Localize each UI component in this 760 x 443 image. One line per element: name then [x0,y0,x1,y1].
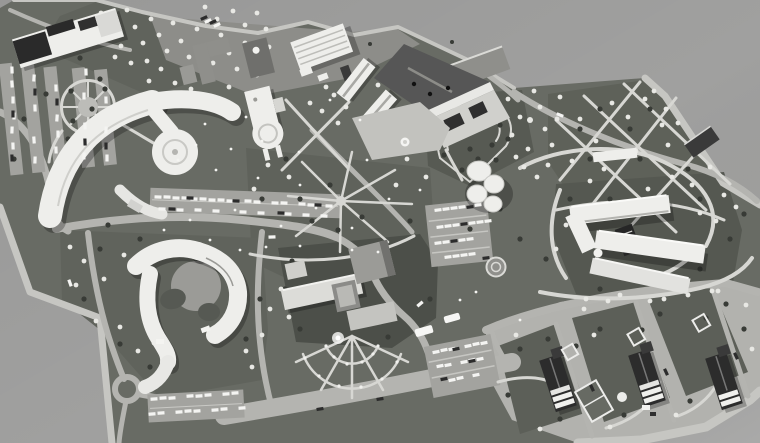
tree-dark [359,214,364,219]
figure [230,148,233,151]
car-white [10,80,14,87]
tree-light [618,293,623,298]
tree-light [344,105,349,110]
tree-dark [441,152,446,157]
car-white [307,203,314,206]
tree-light [514,155,519,160]
tree-dark [627,126,632,131]
figure [215,169,218,172]
tree-light [564,223,569,228]
figure [519,319,522,322]
tree-light [662,297,667,302]
car-white [55,114,59,121]
tree-dark [505,392,510,397]
tree-dark [105,222,110,227]
statue [303,356,306,359]
tree-light [394,183,399,188]
tree-light [750,347,755,352]
car-white [11,142,14,149]
car-white [32,136,36,143]
tree-dark [723,301,728,306]
tree-light [203,5,208,10]
blob-4 [484,196,502,212]
tree-light [510,133,515,138]
helipad [487,258,506,277]
tree-light [68,245,73,250]
figure [298,151,301,154]
figure [245,116,248,119]
statue [345,362,348,365]
tree-dark [297,196,302,201]
tree-dark [81,296,86,301]
tree-light [664,107,669,112]
tree-dark [68,88,73,93]
tree-dark [77,55,82,60]
statue [332,355,335,358]
car-dark [33,89,36,96]
car-white [163,195,170,198]
car-white [195,394,202,398]
figure [359,119,362,122]
tree-dark [459,167,464,172]
roof-unit [156,339,164,344]
car-white [193,409,200,413]
tree-light [320,109,325,114]
car-white [10,126,13,133]
car-white [82,152,85,159]
figure [315,207,318,210]
car-white [32,74,36,81]
park-hub [336,196,346,206]
courtyard-2 [198,303,220,321]
tree-light [332,93,337,98]
tree-light [119,44,124,49]
tree-dark [137,236,142,241]
figure [189,219,192,222]
car-white [231,391,238,395]
pod-core [172,149,178,155]
tree-dark [741,326,746,331]
tree-light [602,167,607,172]
car-white [84,68,87,75]
figure [299,245,302,248]
tree-light [676,121,681,126]
tree-dark [97,246,102,251]
tree-dark [607,196,612,201]
chimney [412,82,416,86]
tree-light [652,89,657,94]
tree-light [506,97,511,102]
tree-light [722,193,727,198]
figure [261,140,264,143]
lot-southwest [147,390,244,423]
tree-light [118,325,123,330]
shed [642,405,650,410]
figure [377,251,380,254]
figure [329,99,332,102]
tree-light [74,283,79,288]
tree-light [145,59,150,64]
car-white [257,211,264,214]
figure [280,225,283,228]
tree-dark [685,166,690,171]
car-white [56,131,59,138]
car-dark [186,196,193,199]
tree-dark [577,126,582,131]
tree-dark [517,236,522,241]
car-white [320,214,327,217]
blob-2 [484,175,504,193]
car-white [271,201,278,204]
tree-light [102,277,107,282]
tree-light [550,143,555,148]
tree-light [287,175,292,180]
tree-dark [727,236,732,241]
tree-dark [621,412,626,417]
tree-dark [741,211,746,216]
tree-light [268,307,273,312]
tree-dark [517,346,522,351]
car-white [284,212,291,215]
tree-light [243,23,248,28]
tree-dark [368,42,372,46]
tree-light [227,85,232,90]
car-white [175,410,182,414]
tree-dark [467,226,472,231]
tree-dark [545,336,550,341]
figure [177,159,180,162]
figure [351,249,354,252]
figure [299,184,302,187]
statue [380,377,383,380]
figure [351,227,354,230]
tree-light [670,175,675,180]
car-white [211,408,218,412]
tree-light [122,253,127,258]
tree-dark [543,256,548,261]
figure [388,198,391,201]
tree-light [592,333,597,338]
car-white [302,213,309,216]
tree-light [643,97,648,102]
tree-light [710,289,715,294]
tree-light [666,143,671,148]
tree-light [324,85,329,90]
tree-light [716,289,721,294]
tree-light [235,67,240,72]
tree-light [157,33,162,38]
figure [475,291,478,294]
tree-dark [427,296,432,301]
figure [366,159,369,162]
tree-dark [687,398,692,403]
tree-dark [243,336,248,341]
tree-light [159,67,164,72]
statue [376,344,379,347]
tree-light [129,61,134,66]
figure [204,123,207,126]
tree-light [558,95,563,100]
tree-light [171,21,176,26]
tree-light [173,81,178,86]
tree-light [133,25,138,30]
statue [371,352,374,355]
tree-light [308,101,313,106]
tree-dark [567,196,572,201]
tree-light [538,427,543,432]
tree-light [698,211,703,216]
entrance-fountain [336,336,341,341]
tree-light [626,115,631,120]
tree-dark [43,91,48,96]
tree-light [594,139,599,144]
tree-dark [597,286,602,291]
tree-dark [657,311,662,316]
tree-dark [283,156,288,161]
tree-light [648,299,653,304]
car-white [33,156,36,163]
car-white [148,412,155,416]
figure [419,189,422,192]
car-white [194,208,201,211]
figure [234,209,237,212]
tree-light [244,349,249,354]
car-white [157,411,164,415]
tree-light [250,365,255,370]
car-white [54,84,57,91]
tree-dark [557,416,562,421]
car-white [159,396,166,400]
car-white [168,396,175,400]
model-photo-svg [0,0,760,443]
tree-light [578,117,583,122]
tree-light [136,349,141,354]
tree-light [606,299,611,304]
tree-light [287,315,292,320]
car-white [239,210,246,213]
tree-light [260,333,265,338]
tree-light [336,121,341,126]
helipad-ring [487,258,506,277]
car-white [172,196,179,199]
tree-dark [297,326,302,331]
tree-light [94,319,99,324]
tree-dark [697,196,702,201]
tree-light [165,49,170,54]
tree-dark [597,106,602,111]
tree-dark [637,156,642,161]
figure [239,249,242,252]
tree-dark [407,218,412,223]
car-white [176,208,183,211]
tree-light [526,147,531,152]
car-white [244,199,251,202]
tree-light [266,163,271,168]
tree-light [608,425,613,430]
car-dark [168,207,175,210]
bin [650,412,656,416]
tree-light [554,247,559,252]
tree-dark [335,227,340,232]
tree-light [255,11,260,16]
tree-light [113,55,118,60]
tree-light [141,41,146,46]
tree-dark [309,218,314,223]
figure [209,239,212,242]
tree-dark [647,106,652,111]
statue [337,384,340,387]
tree-light [405,157,410,162]
tree-light [588,179,593,184]
car-white [298,202,305,205]
tree-dark [505,136,510,141]
tree-light [195,27,200,32]
statue [360,360,363,363]
car-white [54,146,57,153]
car-dark [83,138,86,145]
tree-dark [257,296,262,301]
car-white [11,97,14,104]
tree-light [538,105,543,110]
tree-light [252,187,257,192]
figure [459,299,462,302]
tree-dark [327,182,332,187]
tree-light [532,89,537,94]
tree-light [518,115,523,120]
chimney [446,86,450,90]
car-dark [314,203,321,206]
figure [163,229,166,232]
tree-dark [21,116,26,121]
car-white [104,96,107,103]
tree-light [646,187,651,192]
car-dark [55,99,58,106]
fountain-center [403,140,407,144]
car-dark [11,111,14,118]
car-white [184,409,191,413]
tree-dark [597,326,602,331]
car-white [83,122,87,129]
car-white [82,93,85,100]
car-white [158,207,165,210]
tree-dark [117,341,122,346]
car-white [105,155,108,162]
blob-3 [467,185,487,203]
tree-light [584,297,589,302]
tree-light [535,175,540,180]
car-dark [277,211,284,214]
car-white [238,406,245,410]
car-white [186,394,193,398]
statue [395,360,398,363]
tree-light [264,27,269,32]
tree-light [660,123,665,128]
white-dot-pavilion [594,249,603,258]
car-dark [104,143,107,150]
tree-light [231,9,236,14]
tree-dark [385,334,390,339]
car-white [104,126,108,133]
car-dark [232,199,239,202]
tree-light [527,117,533,123]
tree-light [82,259,87,264]
plaza-center [78,97,98,117]
car-white [253,200,260,203]
car-white [325,204,332,207]
tree-light [570,159,575,164]
car-white [212,209,219,212]
tree-dark [587,156,592,161]
car-white [150,397,157,401]
model-photo [0,0,760,443]
tree-light [187,55,192,60]
tree-dark [489,142,494,147]
tree-dark [467,146,472,151]
tree-dark [493,157,498,162]
tree-light [514,333,519,338]
tree-light [582,307,587,312]
tree-dark [102,86,107,91]
tree-light [674,413,679,418]
tree-light [708,165,713,170]
tree-light [744,303,749,308]
tree-light [546,163,551,168]
tree-light [522,165,527,170]
tree-light [147,79,152,84]
statue [359,385,362,388]
tree-light [376,83,381,88]
tree-light [734,205,739,210]
car-dark [10,154,13,161]
car-white [10,66,13,73]
statue [317,374,320,377]
car-white [222,392,229,396]
tree-light [555,117,560,122]
car-white [220,407,227,411]
tree-light [690,183,695,188]
tree-light [219,33,224,38]
figure [265,246,268,249]
figure [195,144,198,147]
car-white [208,198,215,201]
tree-dark [147,364,152,369]
tree-light [543,127,548,132]
round-pavilion [617,392,627,402]
tree-dark [89,106,94,111]
tree-light [179,39,184,44]
car-white [217,198,224,201]
car-white [154,195,161,198]
car-white [268,235,275,238]
car-white [280,201,287,204]
tree-light [610,101,615,106]
tree-light [125,8,130,13]
chimney [428,92,432,96]
tree-light [149,17,154,22]
car-white [204,393,211,397]
car-white [199,197,206,200]
statue [324,344,327,347]
tree-dark [450,40,454,44]
tree-light [424,175,429,180]
tree-dark [97,76,102,81]
car-white [33,104,36,111]
tree-dark [70,118,75,123]
figure [257,177,260,180]
tree-light [714,219,719,224]
